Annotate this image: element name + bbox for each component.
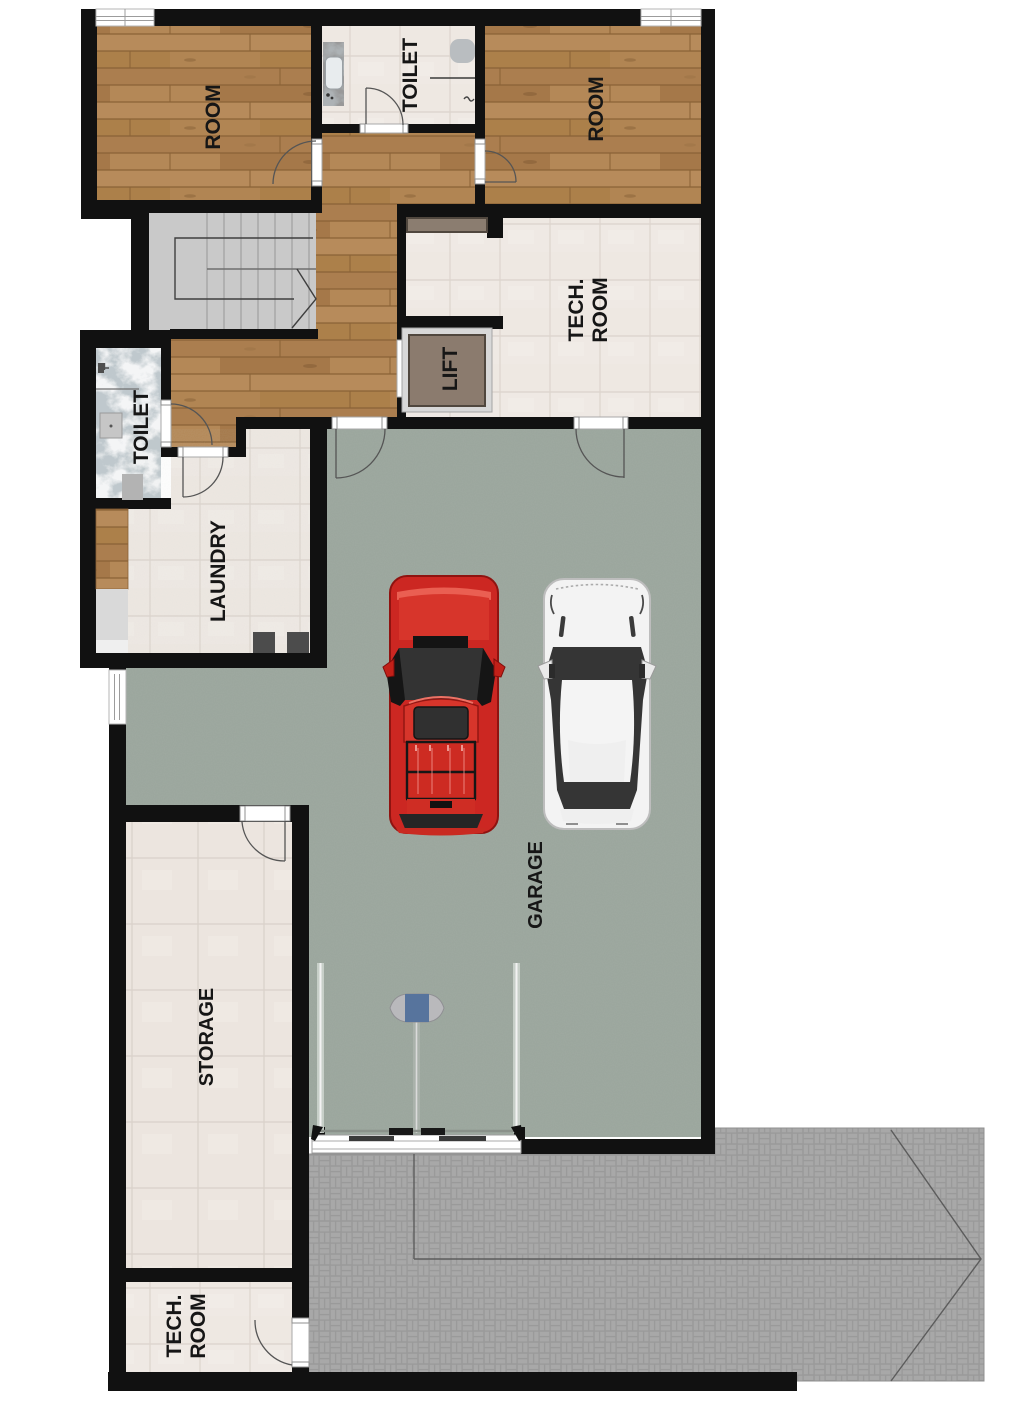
svg-text:LAUNDRY: LAUNDRY [207, 520, 230, 622]
svg-text:STORAGE: STORAGE [196, 988, 218, 1087]
svg-text:TECH.: TECH. [565, 279, 588, 342]
svg-text:GARAGE: GARAGE [525, 841, 547, 929]
svg-text:LIFT: LIFT [439, 347, 462, 391]
svg-text:ROOM: ROOM [589, 277, 612, 342]
svg-text:TOILET: TOILET [399, 38, 422, 112]
svg-text:ROOM: ROOM [187, 1293, 210, 1358]
svg-text:ROOM: ROOM [202, 84, 225, 149]
svg-text:TECH.: TECH. [163, 1295, 186, 1358]
svg-text:TOILET: TOILET [130, 390, 153, 464]
svg-text:ROOM: ROOM [585, 76, 608, 141]
